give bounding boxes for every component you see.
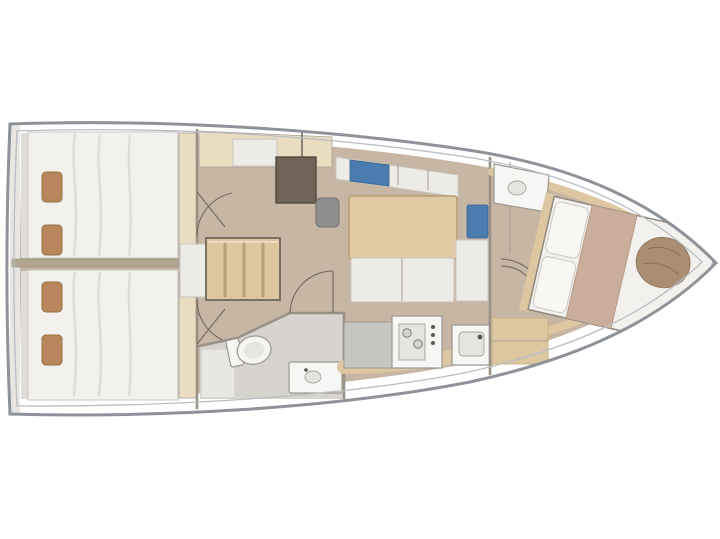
aft-cabin-starboard xyxy=(21,270,197,400)
stove-knob xyxy=(431,325,435,329)
galley-counter xyxy=(344,322,394,368)
companionway xyxy=(180,238,280,300)
aft-cabin-port xyxy=(21,132,197,258)
head-sink xyxy=(305,371,321,383)
stove-knob xyxy=(431,341,435,345)
aft-cabin-divider-wall xyxy=(12,259,197,267)
pillow xyxy=(42,172,62,202)
pillow xyxy=(42,335,62,365)
companionway-landing xyxy=(180,244,206,297)
sink-faucet xyxy=(478,335,483,340)
nav-desk xyxy=(276,157,316,203)
salon-table xyxy=(349,196,457,259)
end-seat-cushion-blue xyxy=(467,205,488,238)
nav-seat xyxy=(316,198,339,227)
salon-end-seat xyxy=(456,240,488,301)
pillow xyxy=(42,225,62,255)
bed-foot-locker xyxy=(179,133,197,257)
stove-knob xyxy=(431,333,435,337)
nav-settee-back xyxy=(233,139,277,166)
stove-burner xyxy=(414,340,422,348)
settee-cushion-blue xyxy=(350,160,389,186)
yacht-floor-plan xyxy=(0,0,720,539)
floor-plan-canvas xyxy=(0,0,720,539)
forward-head-sink xyxy=(508,181,526,195)
stove-burner xyxy=(403,329,411,337)
head-faucet xyxy=(304,368,308,372)
pillow xyxy=(42,282,62,312)
